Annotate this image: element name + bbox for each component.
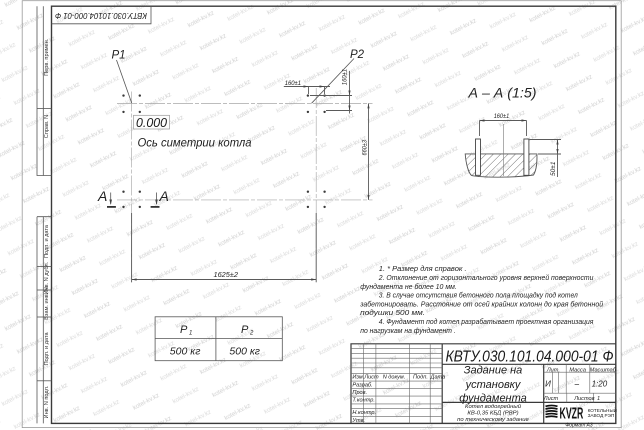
svg-text:P2: P2 [350,49,365,61]
svg-text:Дата: Дата [430,375,446,381]
svg-text:160±1: 160±1 [285,80,301,87]
svg-text:KVZR: KVZR [560,406,584,423]
svg-text:Задание на: Задание на [464,365,523,377]
svg-text:Листов: Листов [573,396,594,402]
svg-text:Утв.: Утв. [351,418,365,424]
svg-text:1: 1 [189,331,192,337]
svg-text:A: A [97,188,107,204]
svg-text:Котел водогрейный: Котел водогрейный [465,403,522,410]
svg-text:Подп.: Подп. [413,375,428,381]
svg-text:Справ. N: Справ. N [44,115,50,138]
svg-text:Т.контр.: Т.контр. [352,398,375,404]
svg-text:A: A [159,188,169,204]
svg-text:по нагрузкам на фундамент .: по нагрузкам на фундамент . [360,326,456,335]
svg-text:3. В случае отсутствия бетонн: 3. В случае отсутствия бетонного пола пл… [379,291,579,300]
svg-text:Н.контр.: Н.контр. [352,410,376,416]
svg-text:Масса: Масса [569,368,586,374]
svg-text:P: P [180,324,188,336]
svg-text:500 кг: 500 кг [170,346,201,358]
svg-text:КВ-0,35 КБД (РВР): КВ-0,35 КБД (РВР) [467,411,518,417]
svg-text:Лит.: Лит. [546,368,560,374]
svg-text:КВТУ.030.10104.000-01 Ф: КВТУ.030.10104.000-01 Ф [54,11,147,20]
svg-text:Перв. примен.: Перв. примен. [44,38,50,76]
svg-text:Подп. и дата: Подп. и дата [44,224,50,258]
svg-text:P: P [241,324,249,336]
svg-text:Ось симетрии котла: Ось симетрии котла [138,136,252,150]
svg-text:ЗАВОД РЭП: ЗАВОД РЭП [588,413,615,418]
svg-text:1. * Размер для справок .: 1. * Размер для справок . [379,264,467,273]
svg-text:Формат А3: Формат А3 [565,423,593,429]
svg-text:КВТУ.030.101.04.000-01 Ф: КВТУ.030.101.04.000-01 Ф [446,348,614,365]
svg-text:установку: установку [465,379,522,391]
svg-text:1:20: 1:20 [592,380,608,389]
svg-text:2. Отклонение от горизонтальн: 2. Отклонение от горизонтального уровня … [378,273,594,282]
svg-text:фундамента: фундамента [459,393,527,405]
svg-text:Лист: Лист [543,396,559,402]
svg-text:Разраб.: Разраб. [352,383,372,389]
svg-text:КОТЕЛЬНЫЙ: КОТЕЛЬНЫЙ [588,406,617,413]
svg-text:1625±2: 1625±2 [214,272,239,279]
svg-text:160±1: 160±1 [342,69,349,85]
svg-text:Масштаб: Масштаб [590,368,617,374]
svg-text:Взам. инв. N: Взам. инв. N [44,287,50,320]
svg-text:по техническому задание: по техническому задание [457,417,529,423]
svg-text:Подп. и дата: Подп. и дата [44,332,50,366]
svg-text:Изм.Лист: Изм.Лист [352,375,379,381]
svg-text:А – А (1:5): А – А (1:5) [467,86,536,101]
svg-text:2: 2 [249,331,254,337]
svg-text:забетонировать. Расстояние от: забетонировать. Расстояние от осей крайн… [359,299,604,308]
svg-text:подушки 500 мм.: подушки 500 мм. [360,308,425,317]
svg-text:Пров.: Пров. [352,390,367,396]
svg-text:160±1: 160±1 [494,113,510,120]
svg-text:4. Фундамент под котел разраб: 4. Фундамент под котел разрабатывает про… [379,317,594,326]
svg-text:50±1: 50±1 [550,161,557,176]
svg-text:1: 1 [597,396,600,402]
svg-text:0.000: 0.000 [136,116,167,130]
svg-text:N докум.: N докум. [383,375,406,381]
svg-text:фундамента не более 10 мм.: фундамента не более 10 мм. [360,282,457,291]
svg-text:500 кг: 500 кг [229,346,260,358]
svg-text:P1: P1 [112,50,126,62]
svg-text:И: И [545,380,551,389]
svg-text:–: – [574,380,580,389]
svg-text:Инв. N подл.: Инв. N подл. [44,385,50,418]
svg-text:660±3: 660±3 [362,140,369,156]
